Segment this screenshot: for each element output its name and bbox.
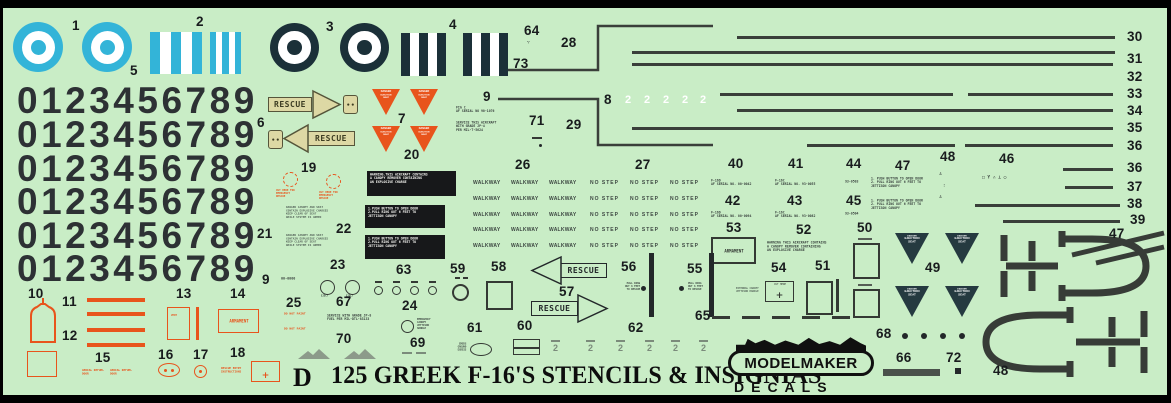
stencil-bar <box>196 307 199 340</box>
part-number-6: 6 <box>257 115 265 130</box>
stencil-bar <box>416 352 426 354</box>
outline-box: + <box>251 361 280 382</box>
stencil-line <box>632 51 1115 54</box>
part-number-14: 14 <box>230 286 246 301</box>
part-number-25: 25 <box>286 295 302 310</box>
stencil-bar <box>87 312 145 316</box>
no-step-stencil: NO STEP <box>590 180 619 186</box>
gray-numeral: 2 <box>647 343 652 353</box>
part-number-21: 21 <box>257 226 273 241</box>
stencil-oval <box>470 343 492 356</box>
canopy-release-pad: ● ● <box>343 95 358 114</box>
flag-stripe <box>401 33 410 76</box>
no-step-stencil: NO STEP <box>670 180 699 186</box>
stencil-bar <box>802 316 820 319</box>
part-number-64: 64 <box>524 23 540 38</box>
part-number-23: 23 <box>330 257 346 272</box>
part-number-55: 55 <box>687 261 703 276</box>
stencil-text: DO NOT PAINT <box>284 327 306 331</box>
stencil-circle <box>326 174 341 189</box>
box-plus-mark: + <box>262 371 270 381</box>
outline-box <box>806 281 833 315</box>
part-number-33: 33 <box>1127 86 1143 101</box>
gray-numeral-overline <box>671 340 680 342</box>
stencil-bar <box>955 368 961 374</box>
gray-numeral: 2 <box>588 343 593 353</box>
flag-stripe <box>410 33 419 76</box>
stencil-text: F-16CAF SERIAL NO. 93-0082 <box>775 211 815 218</box>
stencil-oval <box>158 363 180 377</box>
part-number-65: 65 <box>695 308 711 323</box>
part-number-11: 11 <box>62 294 77 309</box>
part-number-47: 47 <box>1109 226 1125 241</box>
warning-text-box: WARNING.THIS AIRCRAFT CONTAINSA CANOPY R… <box>367 171 456 196</box>
no-step-stencil: NO STEP <box>630 196 659 202</box>
walkway-stencil: WALKWAY <box>473 196 500 202</box>
outline-box <box>513 339 540 355</box>
no-step-stencil: NO STEP <box>590 243 619 249</box>
walkway-stencil: WALKWAY <box>473 180 500 186</box>
flag-stripe <box>192 32 202 74</box>
stencil-text: : <box>943 183 945 188</box>
part-number-2: 2 <box>196 14 204 29</box>
part-number-69: 69 <box>410 335 426 350</box>
stencil-text: PULL RINGOUT 6 FEETTO RESCUE <box>625 282 640 291</box>
stencil-line <box>632 63 1113 66</box>
part-number-56: 56 <box>621 259 637 274</box>
part-number-19: 19 <box>301 160 317 175</box>
stripe-flag-navy <box>401 33 446 76</box>
part-number-58: 58 <box>491 259 507 274</box>
flag-stripe <box>490 33 499 76</box>
stencil-line <box>1063 168 1113 171</box>
stencil-text: SERVICE WITH GRADE JP-8FUEL PER MIL-DTL-… <box>327 314 371 321</box>
part-number-9: 9 <box>483 89 491 104</box>
stencil-text: 00-0000 <box>281 277 295 281</box>
part-number-17: 17 <box>193 347 209 362</box>
gray-numeral: 2 <box>673 343 678 353</box>
stencil-text: F-16CAF SERIAL NO. 93-0055 <box>775 179 815 186</box>
rescue-arrow-head-icon <box>577 294 608 323</box>
roundel-ring <box>278 31 310 63</box>
part-number-57: 57 <box>559 284 575 299</box>
warning-text: WARNING.THIS AIRCRAFT CONTAINSA CANOPY R… <box>370 173 456 184</box>
stencil-line <box>1003 220 1120 223</box>
walkway-stencil: WALKWAY <box>473 227 500 233</box>
outline-box <box>853 289 880 318</box>
rescue-arrow-head-icon <box>312 90 341 119</box>
no-step-stencil: NO STEP <box>670 212 699 218</box>
stencil-bar <box>463 277 468 279</box>
part-number-52: 52 <box>796 222 812 237</box>
box-midline <box>514 347 539 349</box>
stencil-bar <box>772 316 790 319</box>
stencil-dot <box>679 286 684 291</box>
part-number-10: 10 <box>28 286 44 301</box>
white-numeral: 2 <box>682 94 688 106</box>
white-numeral: 2 <box>644 94 650 106</box>
flag-stripe <box>181 32 191 74</box>
part-number-18: 18 <box>230 345 246 360</box>
part-number-24: 24 <box>402 298 418 313</box>
gray-numeral-overline <box>645 340 654 342</box>
stencil-circle <box>283 172 298 187</box>
stencil-circle <box>428 286 437 295</box>
stencil-bar <box>429 281 436 283</box>
stencil-line <box>720 93 953 96</box>
stencil-text: AERIAL REFUELDOOR <box>110 369 132 376</box>
part-number-48: 48 <box>940 149 956 164</box>
stencil-text: FIG CAF SERIAL NO 90-1076 <box>456 106 494 113</box>
rescue-arrow-shaft: RESCUE <box>531 301 578 316</box>
stencil-line <box>632 127 1113 130</box>
stencil-bar <box>712 316 730 319</box>
gray-numeral: 2 <box>618 343 623 353</box>
walkway-stencil: WALKWAY <box>549 180 576 186</box>
stencil-bar <box>836 279 839 312</box>
stencil-bar <box>742 316 760 319</box>
part-number-36: 36 <box>1127 160 1143 175</box>
stencil-bar <box>455 277 460 279</box>
outline-box <box>27 351 57 377</box>
part-number-53: 53 <box>726 220 742 235</box>
part-number-8: 8 <box>604 92 612 107</box>
stencil-bar <box>87 328 145 332</box>
part-number-71: 71 <box>529 113 545 128</box>
part-number-29: 29 <box>566 117 582 132</box>
flag-stripe <box>437 33 446 76</box>
stencil-text: ⚓ <box>939 171 942 177</box>
gray-numeral: 2 <box>553 343 558 353</box>
part-number-41: 41 <box>788 156 804 171</box>
part-number-70: 70 <box>336 331 352 346</box>
gray-numeral-overline <box>586 340 595 342</box>
stencil-text: EJECT <box>321 295 328 298</box>
no-step-stencil: NO STEP <box>590 212 619 218</box>
outline-box-label: ARMAMENT <box>229 319 248 324</box>
roundel-center <box>100 40 115 55</box>
stencil-circle <box>194 365 207 378</box>
walkway-stencil: WALKWAY <box>511 180 538 186</box>
stencil-text: WARNING THIS AIRCRAFT CONTAINSA CANOPY R… <box>767 241 827 252</box>
stencil-dot <box>959 333 965 339</box>
stencil-text: EMERGENCYCANOPYJETTISONHANDLE <box>417 318 431 330</box>
part-number-13: 13 <box>176 286 192 301</box>
rescue-arrow-shaft: RESCUE <box>560 263 607 278</box>
part-number-30: 30 <box>1127 29 1143 44</box>
stencil-text: CUT HERE FOREMERGENCYRESCUE <box>276 189 295 198</box>
part-number-68: 68 <box>876 326 892 341</box>
stencil-text: 93-0503 <box>845 180 858 184</box>
stripe-flag-navy <box>463 33 508 76</box>
stencil-bar <box>411 281 418 283</box>
walkway-stencil: WALKWAY <box>549 196 576 202</box>
rescue-arrow-head-icon <box>531 256 562 285</box>
part-number-46: 46 <box>999 151 1015 166</box>
stencil-dot <box>940 333 946 339</box>
stencil-text: DO NOT PAINT <box>284 312 306 316</box>
roundel-navy <box>340 23 389 72</box>
stencil-bar <box>649 253 654 317</box>
outline-box <box>486 281 513 310</box>
stencil-dot <box>921 333 927 339</box>
part-number-51: 51 <box>815 258 831 273</box>
circle-dot <box>199 370 202 373</box>
part-number-63: 63 <box>396 262 412 277</box>
stencil-line <box>975 204 1120 207</box>
part-number-49: 49 <box>925 260 941 275</box>
outline-box: ARMAMENT <box>711 237 756 264</box>
stencil-text: ⚓ <box>939 194 942 200</box>
part-number-4: 4 <box>449 17 457 32</box>
part-number-22: 22 <box>336 221 352 236</box>
stencil-bar <box>402 352 412 354</box>
stencil-text: EMERGGROUNDEGRESS <box>457 343 466 352</box>
stencil-line <box>737 36 1115 39</box>
flag-stripe <box>171 32 181 74</box>
part-number-32: 32 <box>1127 69 1143 84</box>
roundel-blue <box>82 22 132 72</box>
stencil-circle <box>452 284 469 301</box>
no-step-stencil: NO STEP <box>590 227 619 233</box>
part-number-42: 42 <box>725 193 741 208</box>
part-number-47: 47 <box>895 158 911 173</box>
part-number-16: 16 <box>158 347 174 362</box>
rescue-arrow-shaft: RESCUE <box>268 97 312 112</box>
stencil-bar <box>375 281 382 283</box>
roundel-center <box>357 40 372 55</box>
stencil-line <box>965 144 1113 147</box>
part-number-59: 59 <box>450 261 466 276</box>
outline-box <box>853 243 880 279</box>
flag-stripe <box>481 33 490 76</box>
stencil-text: RESCUE ENTRYINSTRUCTIONS <box>221 367 241 374</box>
box-top-label: CUT HERE <box>773 283 785 286</box>
no-step-stencil: NO STEP <box>630 180 659 186</box>
part-number-5: 5 <box>130 63 138 78</box>
rescue-arrow-head-icon <box>283 124 309 153</box>
stencil-bar <box>532 137 542 139</box>
roundel-ring <box>91 31 124 64</box>
warning-text: 1.PUSH BUTTON TO OPEN DOOR2.PULL RING OU… <box>368 237 445 248</box>
walkway-stencil: WALKWAY <box>549 243 576 249</box>
flag-stripe <box>150 32 160 74</box>
warning-text-box: 1.PUSH BUTTON TO OPEN DOOR2.PULL RING OU… <box>365 205 445 228</box>
outline-box: +CUT HERE <box>765 281 794 302</box>
stencil-bar <box>858 238 872 240</box>
flag-stripe <box>463 33 472 76</box>
stencil-text: DANGER CANOPY AND SEATCONTAIN EXPLOSIVE … <box>286 234 328 247</box>
no-step-stencil: NO STEP <box>670 196 699 202</box>
part-number-12: 12 <box>62 328 78 343</box>
stencil-circle <box>320 280 335 295</box>
stencil-bar <box>883 369 940 376</box>
stencil-text: 1. PUSH BUTTON TO OPEN DOOR2. PULL RING … <box>871 199 923 210</box>
part-number-62: 62 <box>628 320 644 335</box>
stencil-dot <box>902 333 908 339</box>
rescue-arrow-shaft: RESCUE <box>307 131 355 146</box>
stencil-circle <box>392 286 401 295</box>
stencil-text: EXTERNAL CANOPYJETTISON HANDLE <box>736 287 759 293</box>
flag-stripe <box>235 32 241 74</box>
stencil-text: DANGER CANOPY AND SEATCONTAIN EXPLOSIVE … <box>286 206 328 219</box>
stencil-line <box>807 144 955 147</box>
part-number-35: 35 <box>1127 120 1143 135</box>
walkway-stencil: WALKWAY <box>549 227 576 233</box>
stencil-text: 1. PUSH BUTTON TO OPEN DOOR2. PULL RING … <box>871 177 923 188</box>
stencil-bar <box>87 343 145 347</box>
part-number-20: 20 <box>404 147 420 162</box>
roundel-center <box>31 40 46 55</box>
part-number-9: 9 <box>262 272 270 287</box>
part-number-40: 40 <box>728 156 744 171</box>
walkway-stencil: WALKWAY <box>473 212 500 218</box>
part-number-61: 61 <box>467 320 483 335</box>
part-number-34: 34 <box>1127 103 1143 118</box>
decal-sheet: D 125 GREEK F-16'S STENCILS & INSIGNIAS … <box>0 0 1171 403</box>
stencil-bar <box>87 298 145 302</box>
white-numeral: 2 <box>700 94 706 106</box>
no-step-stencil: NO STEP <box>630 243 659 249</box>
stencil-circle <box>410 286 419 295</box>
roundel-ring <box>348 31 380 63</box>
warning-text: 1.PUSH BUTTON TO OPEN DOOR2.PULL RING OU… <box>368 207 445 218</box>
flag-stripe <box>419 33 428 76</box>
outline-box-label: ARMAMENT <box>724 248 743 253</box>
white-numeral: 2 <box>625 94 631 106</box>
stencil-dot <box>539 144 542 147</box>
roundel-ring <box>22 31 55 64</box>
part-number-72: 72 <box>946 350 962 365</box>
part-number-43: 43 <box>787 193 803 208</box>
part-number-1: 1 <box>72 18 80 33</box>
part-number-39: 39 <box>1130 212 1146 227</box>
part-number-15: 15 <box>95 350 111 365</box>
stencil-line <box>737 109 1113 112</box>
gray-numeral-overline <box>699 340 708 342</box>
stencil-text: F-16DAF SERIAL NO. 00-0094 <box>711 211 751 218</box>
stencil-circle <box>401 320 414 333</box>
no-step-stencil: NO STEP <box>670 243 699 249</box>
stencil-circle <box>345 280 360 295</box>
stencil-bar <box>858 284 872 286</box>
stencil-circle <box>374 286 383 295</box>
walkway-stencil: WALKWAY <box>511 243 538 249</box>
walkway-stencil: WALKWAY <box>549 212 576 218</box>
gray-numeral-overline <box>551 340 560 342</box>
no-step-stencil: NO STEP <box>590 196 619 202</box>
part-number-38: 38 <box>1127 196 1143 211</box>
flag-stripe <box>428 33 437 76</box>
stencil-text: 93-0504 <box>845 212 858 216</box>
stencil-text: SERVICE THIS AIRCRAFTWITH GRADE JP-4PER … <box>456 121 496 132</box>
walkway-stencil: WALKWAY <box>473 243 500 249</box>
part-number-48: 48 <box>993 363 1009 378</box>
part-number-54: 54 <box>771 260 787 275</box>
gray-numeral: 2 <box>701 343 706 353</box>
part-number-73: 73 <box>513 56 529 71</box>
white-numeral: 2 <box>663 94 669 106</box>
flag-stripe <box>160 32 170 74</box>
stencil-line <box>1065 186 1113 189</box>
warning-text-box: 1.PUSH BUTTON TO OPEN DOOR2.PULL RING OU… <box>365 235 445 259</box>
part-number-3: 3 <box>326 19 334 34</box>
part-number-36: 36 <box>1127 138 1143 153</box>
stencil-bar <box>832 316 850 319</box>
part-number-67: 67 <box>336 294 352 309</box>
roundel-center <box>287 40 302 55</box>
part-number-44: 44 <box>846 156 862 171</box>
part-number-28: 28 <box>561 35 577 50</box>
walkway-stencil: WALKWAY <box>511 196 538 202</box>
no-step-stencil: NO STEP <box>670 227 699 233</box>
oval-dot <box>171 369 174 372</box>
walkway-stencil: WALKWAY <box>511 227 538 233</box>
outline-box: ARMAMENT <box>218 309 259 333</box>
part-number-26: 26 <box>515 157 531 172</box>
part-number-50: 50 <box>857 220 873 235</box>
stencil-text: CUT HERE FOREMERGENCYRESCUE <box>319 191 338 200</box>
part-number-45: 45 <box>846 193 862 208</box>
digit-row: 0123456789 <box>17 250 258 287</box>
stencil-line <box>968 93 1113 96</box>
flag-stripe <box>499 33 508 76</box>
part-number-37: 37 <box>1127 179 1143 194</box>
stripe-flag-blue <box>210 32 241 74</box>
part-number-60: 60 <box>517 318 533 333</box>
roundel-navy <box>270 23 319 72</box>
gray-numeral-overline <box>616 340 625 342</box>
stencil-text: AERIAL REFUELDOOR <box>82 369 104 376</box>
flag-stripe <box>472 33 481 76</box>
stencil-text: F-16DAF SERIAL NO. 00-0042 <box>711 179 751 186</box>
box-plus-mark: + <box>776 291 784 301</box>
stencil-dot <box>641 286 646 291</box>
no-step-stencil: NO STEP <box>630 212 659 218</box>
part-number-27: 27 <box>635 157 651 172</box>
stencil-bar <box>393 281 400 283</box>
roundel-blue <box>13 22 63 72</box>
stencil-text: PULL RINGOUT 6 FEETTO RESCUE <box>688 282 703 291</box>
stencil-text: ∵ <box>527 40 530 45</box>
part-number-66: 66 <box>896 350 912 365</box>
walkway-stencil: WALKWAY <box>511 212 538 218</box>
outline-box <box>167 307 190 340</box>
part-number-7: 7 <box>398 111 406 126</box>
canopy-release-pad: ● ● <box>268 130 283 149</box>
oval-dot <box>164 369 167 372</box>
stencil-text: □ Y ∴ ⊥ ○ <box>982 175 1006 180</box>
part-number-31: 31 <box>1127 51 1143 66</box>
stripe-flag-blue <box>150 32 202 74</box>
no-step-stencil: NO STEP <box>630 227 659 233</box>
